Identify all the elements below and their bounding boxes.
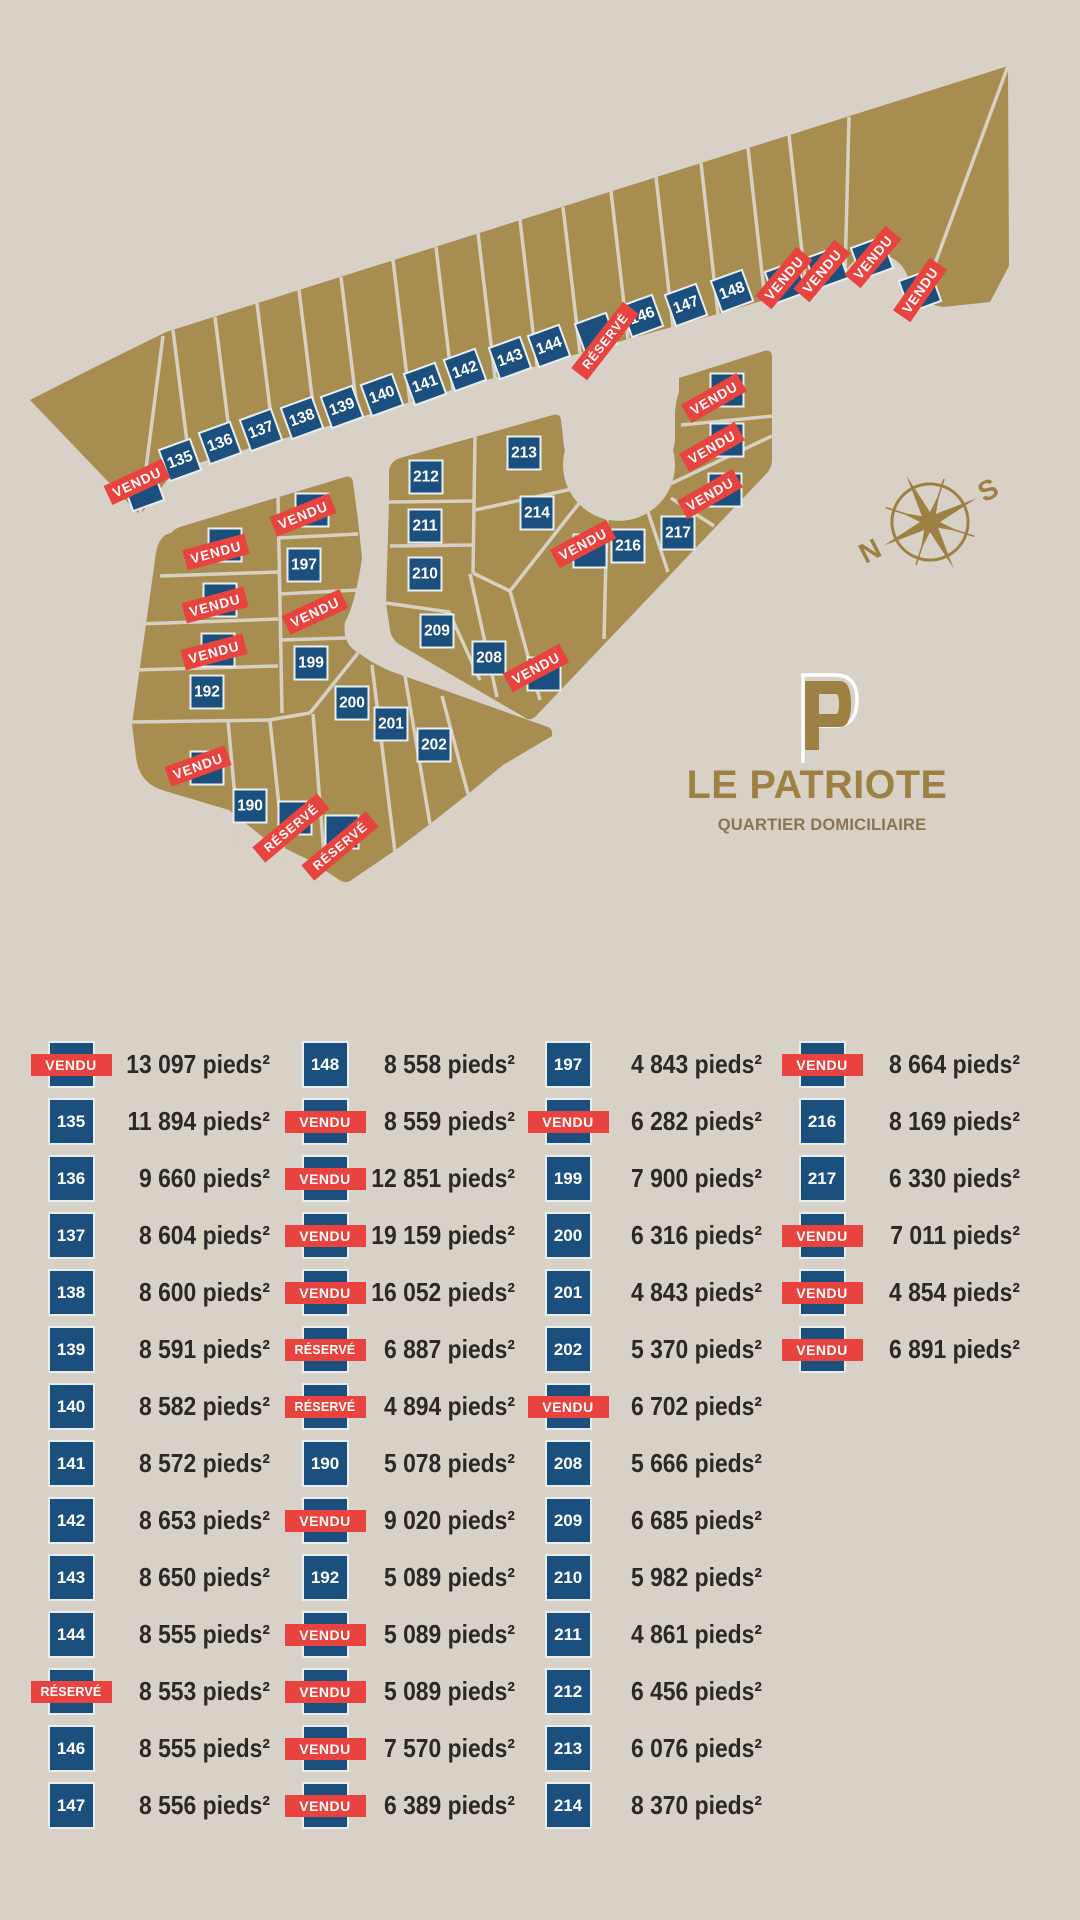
svg-text:190: 190 <box>237 798 263 815</box>
svg-text:200: 200 <box>339 695 365 712</box>
svg-text:201: 201 <box>378 716 404 733</box>
svg-text:N: N <box>854 533 886 570</box>
svg-text:212: 212 <box>413 469 439 486</box>
svg-text:199: 199 <box>298 655 324 672</box>
svg-text:210: 210 <box>412 566 438 583</box>
svg-text:209: 209 <box>424 623 450 640</box>
svg-text:208: 208 <box>476 650 502 667</box>
svg-text:214: 214 <box>524 505 550 522</box>
svg-text:197: 197 <box>291 557 317 574</box>
svg-text:S: S <box>973 472 1004 508</box>
svg-text:211: 211 <box>412 518 437 535</box>
svg-text:216: 216 <box>615 538 641 555</box>
svg-text:217: 217 <box>665 525 691 542</box>
svg-text:213: 213 <box>511 445 537 462</box>
svg-text:202: 202 <box>421 737 447 754</box>
svg-text:192: 192 <box>194 684 220 701</box>
